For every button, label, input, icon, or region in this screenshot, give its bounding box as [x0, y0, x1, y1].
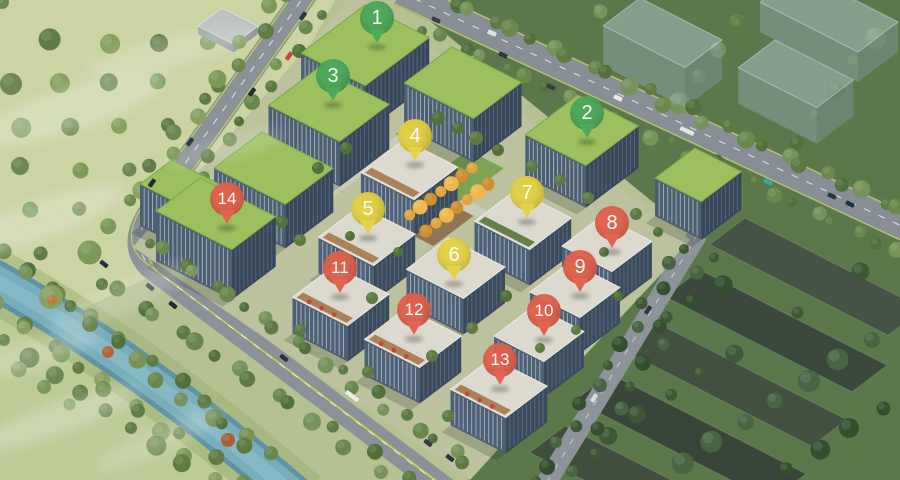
map-pin-12[interactable]: 12 — [397, 293, 431, 327]
map-pin-9[interactable]: 9 — [563, 250, 597, 284]
map-pin-7[interactable]: 7 — [510, 176, 544, 210]
map-pin-6[interactable]: 6 — [437, 238, 471, 272]
masterplan-canvas: 1234567891011121314 — [0, 0, 900, 480]
map-pin-5[interactable]: 5 — [351, 192, 385, 226]
map-pin-3[interactable]: 3 — [316, 59, 350, 93]
map-pin-2[interactable]: 2 — [570, 96, 604, 130]
map-pin-11[interactable]: 11 — [323, 251, 357, 285]
map-pin-13[interactable]: 13 — [483, 343, 517, 377]
map-pin-4[interactable]: 4 — [398, 119, 432, 153]
building-pins-layer: 1234567891011121314 — [0, 0, 900, 480]
map-pin-10[interactable]: 10 — [527, 294, 561, 328]
map-pin-1[interactable]: 1 — [360, 1, 394, 35]
map-pin-8[interactable]: 8 — [595, 206, 629, 240]
map-pin-14[interactable]: 14 — [210, 182, 244, 216]
